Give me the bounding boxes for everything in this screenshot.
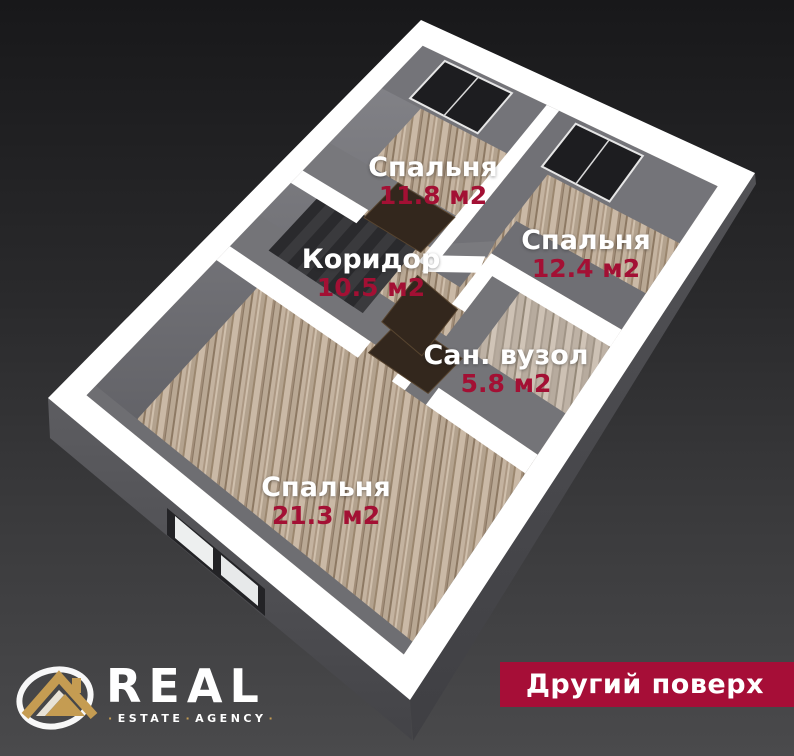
room-area: 10.5 м2 bbox=[302, 274, 441, 301]
room-name: Спальня bbox=[368, 153, 498, 182]
logo-text: REAL ·ESTATE·AGENCY· bbox=[106, 663, 278, 725]
room-area: 12.4 м2 bbox=[521, 255, 651, 282]
room-label-bathroom: Сан. вузол 5.8 м2 bbox=[423, 341, 588, 397]
floorplan-scene: Спальня 11.8 м2 Спальня 12.4 м2 Коридор … bbox=[0, 0, 794, 756]
logo-dot: · bbox=[185, 712, 193, 725]
room-label-corridor: Коридор 10.5 м2 bbox=[302, 245, 441, 301]
room-label-bedroom-21-3: Спальня 21.3 м2 bbox=[261, 473, 391, 529]
room-label-bedroom-11-8: Спальня 11.8 м2 bbox=[368, 153, 498, 209]
floor-badge: Другий поверх bbox=[500, 662, 794, 707]
logo-house-icon bbox=[12, 648, 104, 740]
room-label-bedroom-12-4: Спальня 12.4 м2 bbox=[521, 226, 651, 282]
logo-title: REAL bbox=[106, 663, 278, 709]
logo-subtitle-left: ESTATE bbox=[118, 712, 184, 725]
room-name: Спальня bbox=[261, 473, 391, 502]
room-name: Коридор bbox=[302, 245, 441, 274]
logo-dot: · bbox=[268, 712, 276, 725]
agency-logo: REAL ·ESTATE·AGENCY· bbox=[12, 648, 278, 740]
logo-subtitle-right: AGENCY bbox=[195, 712, 266, 725]
room-name: Сан. вузол bbox=[423, 341, 588, 370]
room-area: 11.8 м2 bbox=[368, 182, 498, 209]
floor-badge-label: Другий поверх bbox=[526, 669, 764, 700]
floorplan-3d-render bbox=[0, 0, 794, 756]
room-name: Спальня bbox=[521, 226, 651, 255]
room-area: 21.3 м2 bbox=[261, 502, 391, 529]
logo-subtitle: ·ESTATE·AGENCY· bbox=[106, 712, 278, 725]
room-area: 5.8 м2 bbox=[423, 370, 588, 397]
logo-dot: · bbox=[108, 712, 116, 725]
